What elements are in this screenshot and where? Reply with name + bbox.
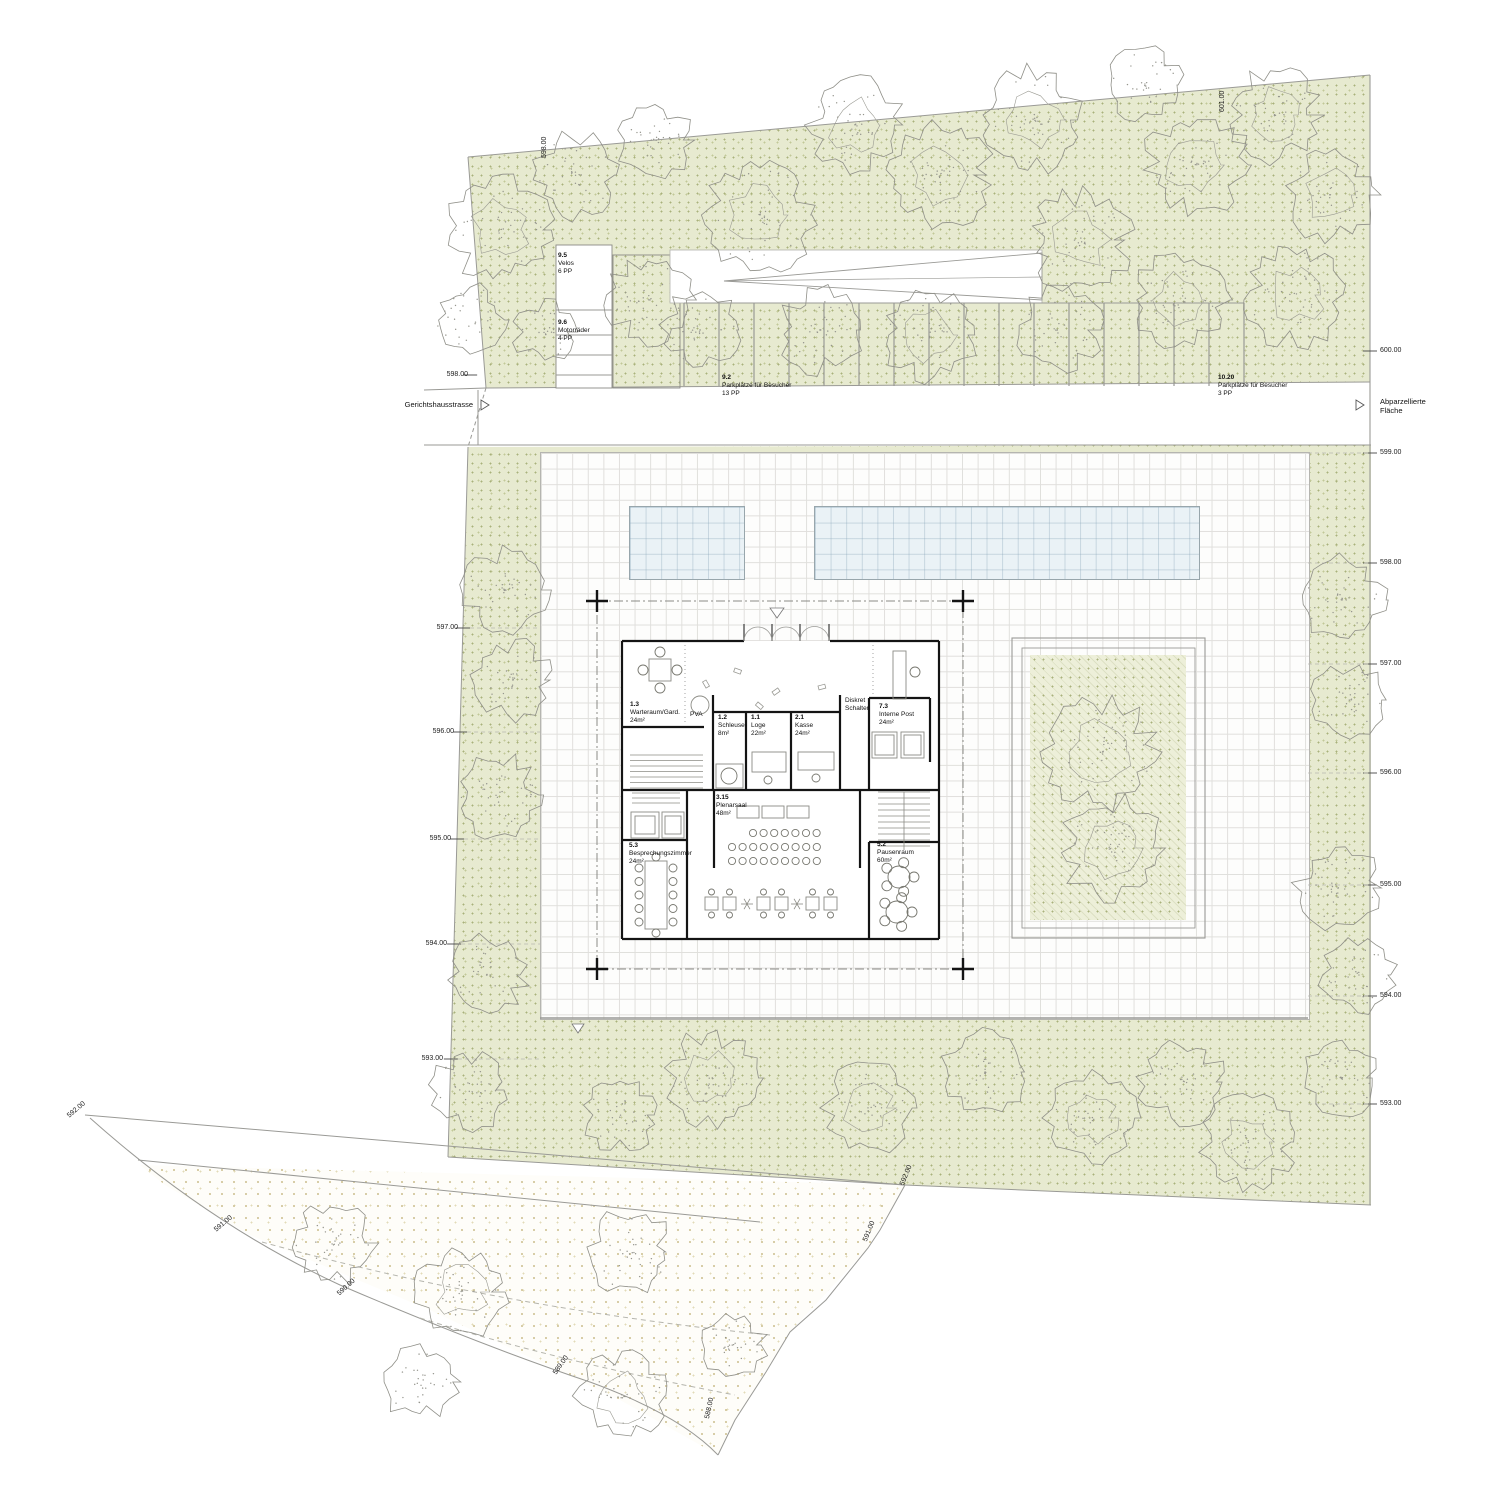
plan-linework	[0, 0, 1500, 1500]
site-plan-canvas: Gerichtshausstrasse Abparzellierte Fläch…	[0, 0, 1500, 1500]
